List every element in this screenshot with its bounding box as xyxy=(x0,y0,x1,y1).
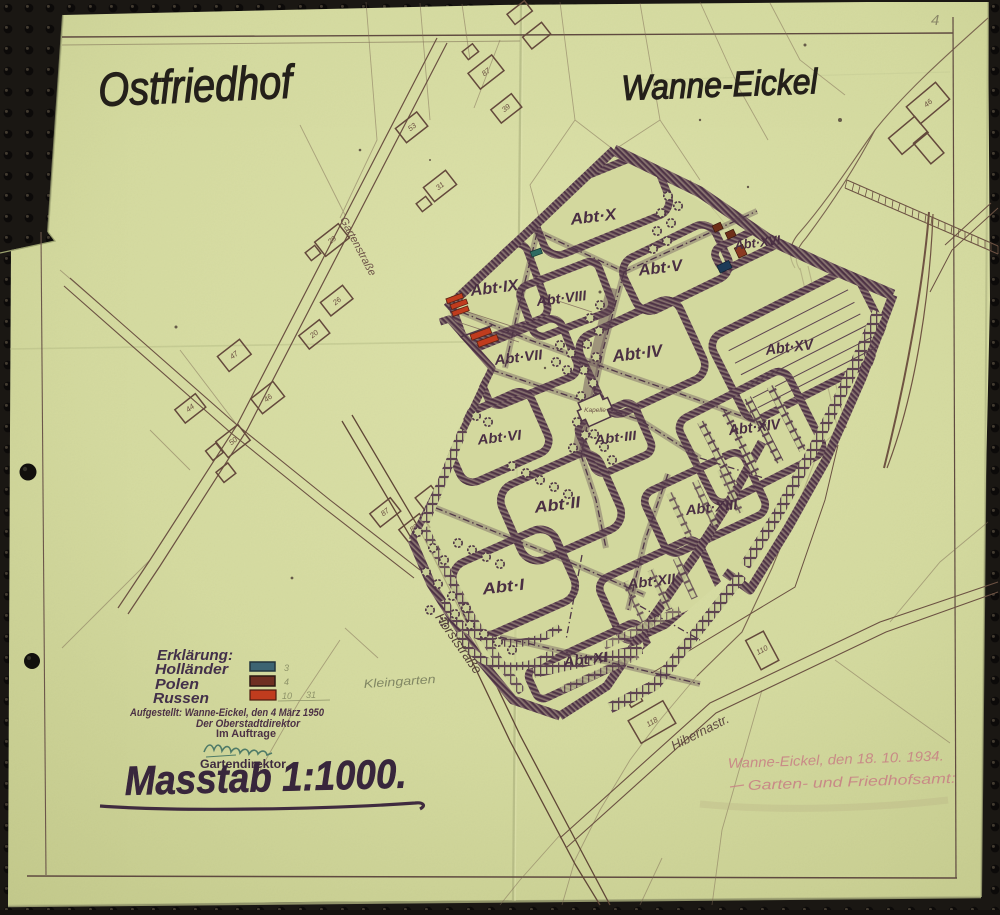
svg-text:Ostfriedhof: Ostfriedhof xyxy=(97,54,297,116)
svg-text:Wanne-Eickel: Wanne-Eickel xyxy=(621,62,819,108)
svg-text:Masstab 1:1000.: Masstab 1:1000. xyxy=(124,751,407,804)
svg-text:Im Auftrage: Im Auftrage xyxy=(216,728,276,740)
svg-text:Kapelle: Kapelle xyxy=(584,407,606,414)
svg-text:4: 4 xyxy=(284,677,289,687)
svg-text:Holländer: Holländer xyxy=(155,662,229,678)
svg-text:10: 10 xyxy=(282,691,292,701)
svg-text:4: 4 xyxy=(931,12,939,29)
svg-text:Russen: Russen xyxy=(153,691,209,707)
svg-text:31: 31 xyxy=(306,690,316,700)
svg-text:3: 3 xyxy=(284,663,289,673)
